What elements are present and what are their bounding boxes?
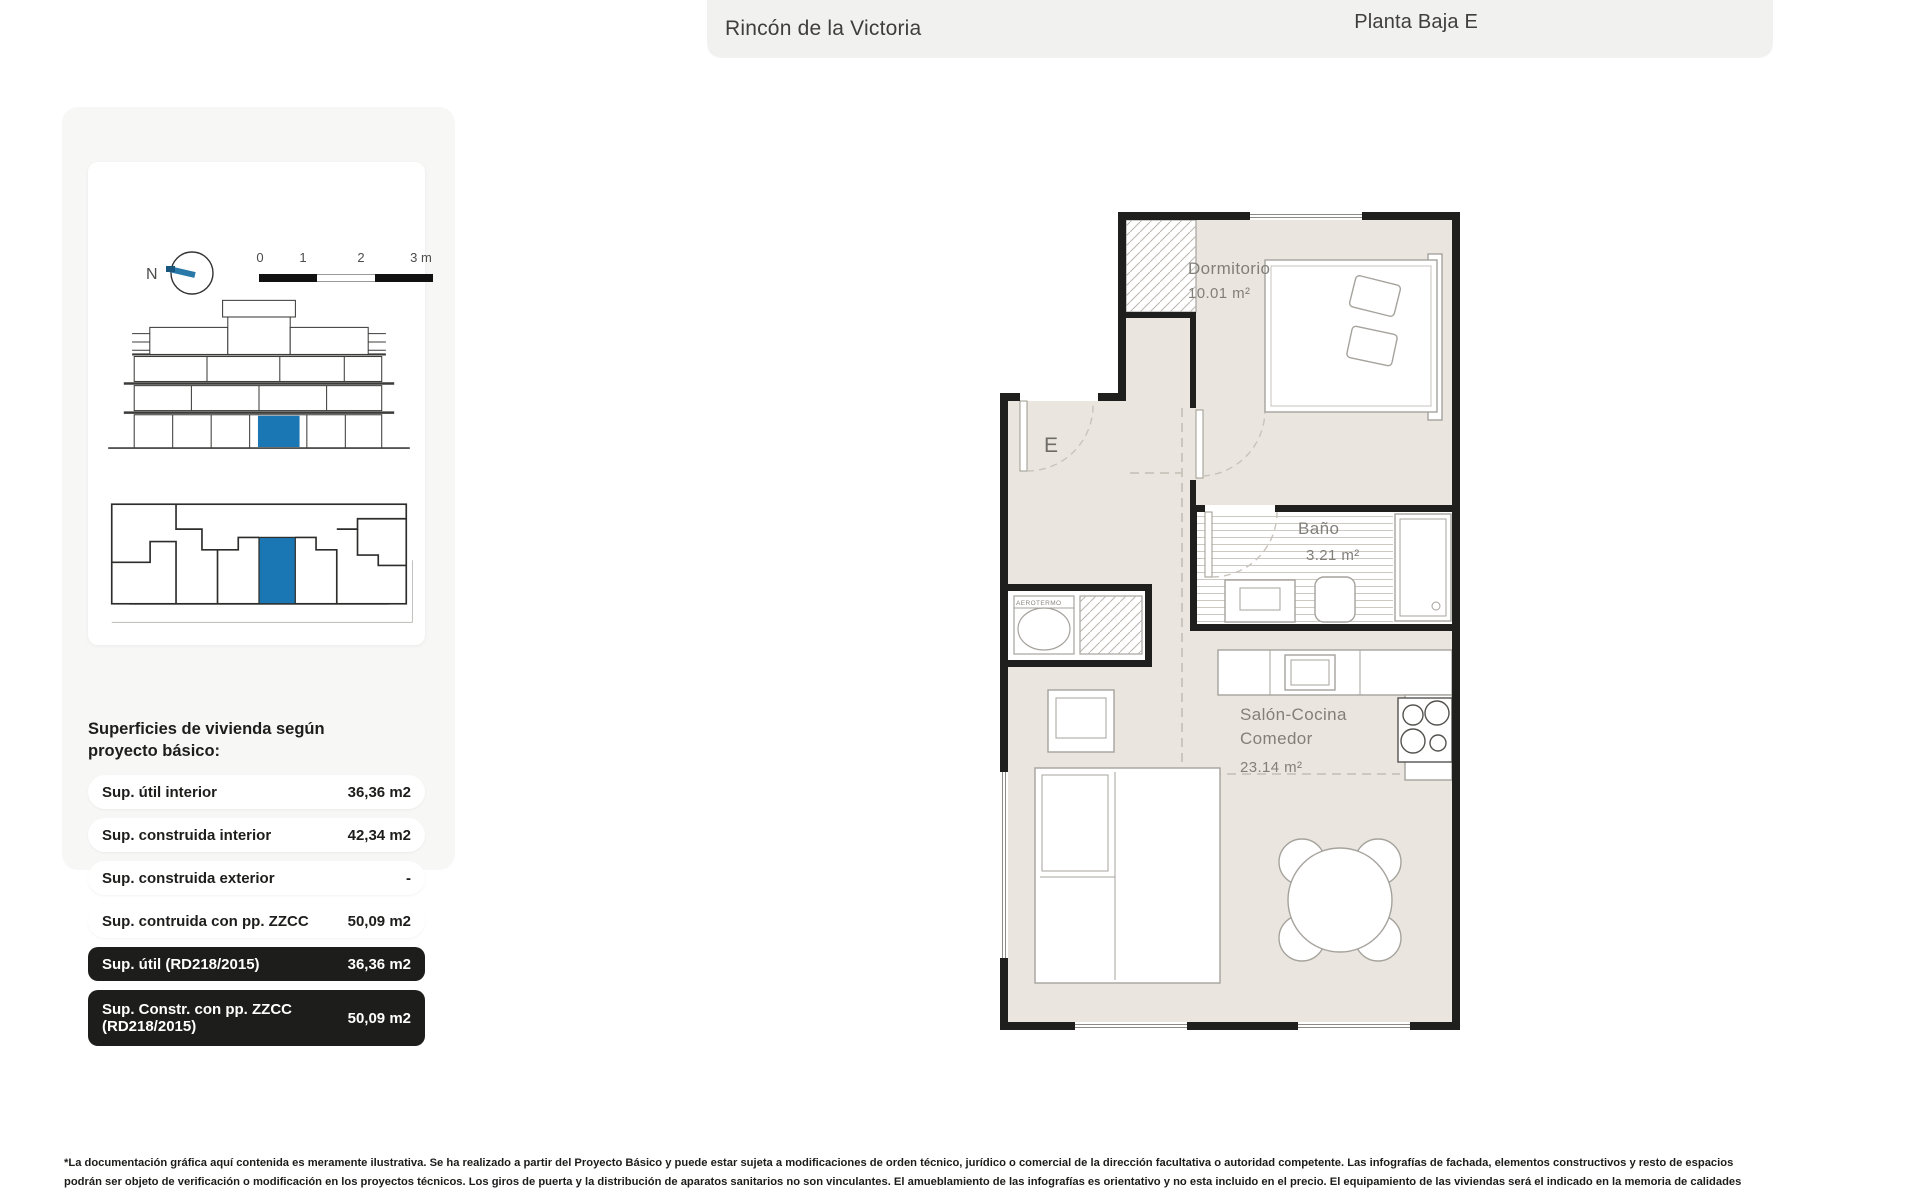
- area-row-value: 42,34 m2: [348, 827, 411, 844]
- washbasin: [1240, 588, 1280, 610]
- areas-title-line2: proyecto básico:: [88, 740, 425, 762]
- brochure-page: Rincón de la Victoria Planta Baja E N 0 …: [0, 0, 1920, 1200]
- entrance-door-leaf: [1020, 401, 1027, 471]
- scale-segment-black-2: [375, 274, 433, 282]
- area-row-label: Sup. construida interior: [102, 827, 271, 844]
- area-row-value: 36,36 m2: [348, 956, 411, 973]
- floor-title: Planta Baja E: [1354, 11, 1478, 34]
- area-row-label: Sup. contruida con pp. ZZCC: [102, 913, 309, 930]
- floor-plan: AEROTERMO: [1000, 212, 1460, 1030]
- living-area: 23.14 m²: [1240, 759, 1302, 776]
- living-label-line2: Comedor: [1240, 729, 1313, 748]
- compass-n-label: N: [146, 266, 158, 283]
- scale-segment-white: [317, 274, 375, 282]
- area-row-construida-zzcc: Sup. contruida con pp. ZZCC 50,09 m2: [88, 904, 425, 938]
- disclaimer-line1: *La documentación gráfica aquí contenida…: [64, 1154, 1914, 1173]
- areas-table: Superficies de vivienda según proyecto b…: [88, 718, 425, 1055]
- area-row-util-rd218: Sup. útil (RD218/2015) 36,36 m2: [88, 947, 425, 981]
- bathroom-area: 3.21 m²: [1306, 547, 1360, 564]
- areas-title: Superficies de vivienda según proyecto b…: [88, 718, 425, 762]
- dining-table: [1288, 848, 1392, 952]
- scale-tick-2: 2: [346, 250, 376, 265]
- scale-tick-0: 0: [245, 250, 275, 265]
- key-plan-diagram: [103, 498, 415, 638]
- area-row-value: 36,36 m2: [348, 784, 411, 801]
- area-row-constr-zzcc-rd218: Sup. Constr. con pp. ZZCC (RD218/2015) 5…: [88, 990, 425, 1046]
- building-elevation-diagram: [103, 292, 415, 472]
- scale-segment-black-1: [259, 274, 317, 282]
- living-side-window: [1000, 772, 1008, 958]
- area-row-util-interior: Sup. útil interior 36,36 m2: [88, 775, 425, 809]
- compass-needle-tip: [166, 266, 175, 272]
- scale-tick-3: 3 m: [406, 250, 436, 265]
- area-row-value: -: [406, 870, 411, 887]
- disclaimer: *La documentación gráfica aquí contenida…: [64, 1154, 1914, 1192]
- shower-drain: [1432, 602, 1440, 610]
- living-window-left: [1075, 1022, 1187, 1030]
- dining-window: [1298, 1022, 1410, 1030]
- areas-title-line1: Superficies de vivienda según: [88, 718, 425, 740]
- bedroom-door-leaf: [1196, 410, 1203, 478]
- area-row-label: Sup. Constr. con pp. ZZCC (RD218/2015): [102, 1001, 337, 1035]
- area-row-label: Sup. construida exterior: [102, 870, 275, 887]
- disclaimer-line2: podrán ser objeto de verificación o modi…: [64, 1173, 1914, 1192]
- area-row-value: 50,09 m2: [348, 913, 411, 930]
- aerotermo-closet: AEROTERMO: [1008, 591, 1145, 660]
- aerotermo-label: AEROTERMO: [1016, 600, 1062, 607]
- header-band: Rincón de la Victoria Planta Baja E: [707, 0, 1773, 58]
- bedroom-label: Dormitorio: [1188, 259, 1270, 278]
- bedroom-area: 10.01 m²: [1188, 285, 1250, 302]
- area-row-label: Sup. útil (RD218/2015): [102, 956, 260, 973]
- area-row-construida-exterior: Sup. construida exterior -: [88, 861, 425, 895]
- area-row-label: Sup. útil interior: [102, 784, 217, 801]
- wardrobe: [1126, 220, 1196, 312]
- bathroom-label: Baño: [1298, 519, 1339, 538]
- cooktop: [1398, 698, 1452, 762]
- area-row-construida-interior: Sup. construida interior 42,34 m2: [88, 818, 425, 852]
- bathroom-door-leaf: [1205, 512, 1212, 577]
- project-name: Rincón de la Victoria: [725, 17, 921, 41]
- shower-inner: [1400, 519, 1446, 616]
- elevation-highlighted-unit: [258, 416, 300, 447]
- bedroom-window: [1250, 212, 1362, 220]
- scale-tick-1: 1: [288, 250, 318, 265]
- toilet: [1315, 577, 1355, 622]
- area-row-value: 50,09 m2: [348, 1010, 411, 1027]
- aerotermo-tank-icon: [1018, 608, 1070, 650]
- bed: [1265, 254, 1442, 420]
- elevation-roof: [223, 300, 296, 317]
- key-plan-highlighted-unit: [259, 537, 295, 603]
- scale-bar: 0 1 2 3 m: [245, 250, 445, 290]
- entrance-label: E: [1044, 434, 1058, 457]
- living-label-line1: Salón-Cocina: [1240, 705, 1347, 724]
